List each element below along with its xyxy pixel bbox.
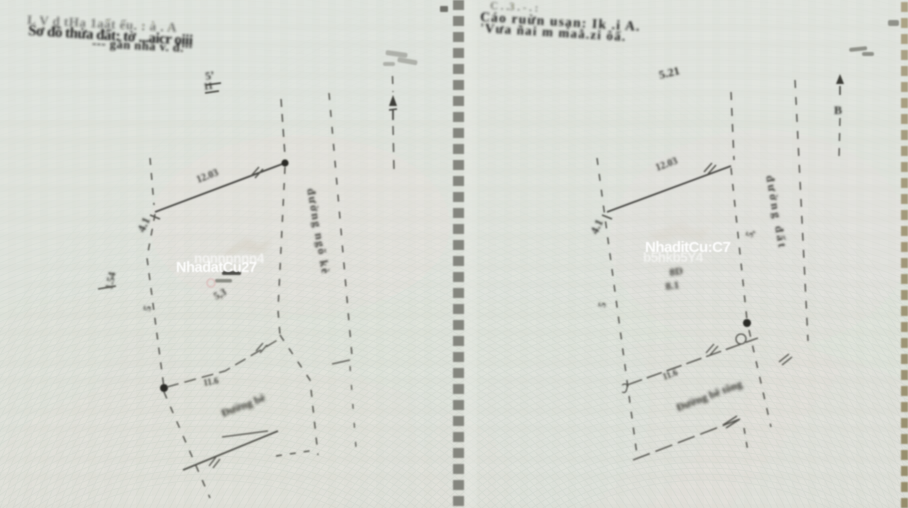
- svg-text:8D: 8D: [669, 265, 684, 279]
- svg-text:11: 11: [203, 81, 214, 93]
- svg-text:B: B: [834, 103, 842, 117]
- svg-text:b5hkb5Y4: b5hkb5Y4: [643, 250, 704, 265]
- svg-text:nonnnnnn4: nonnnnnn4: [194, 251, 265, 266]
- svg-text:8.1: 8.1: [665, 279, 680, 293]
